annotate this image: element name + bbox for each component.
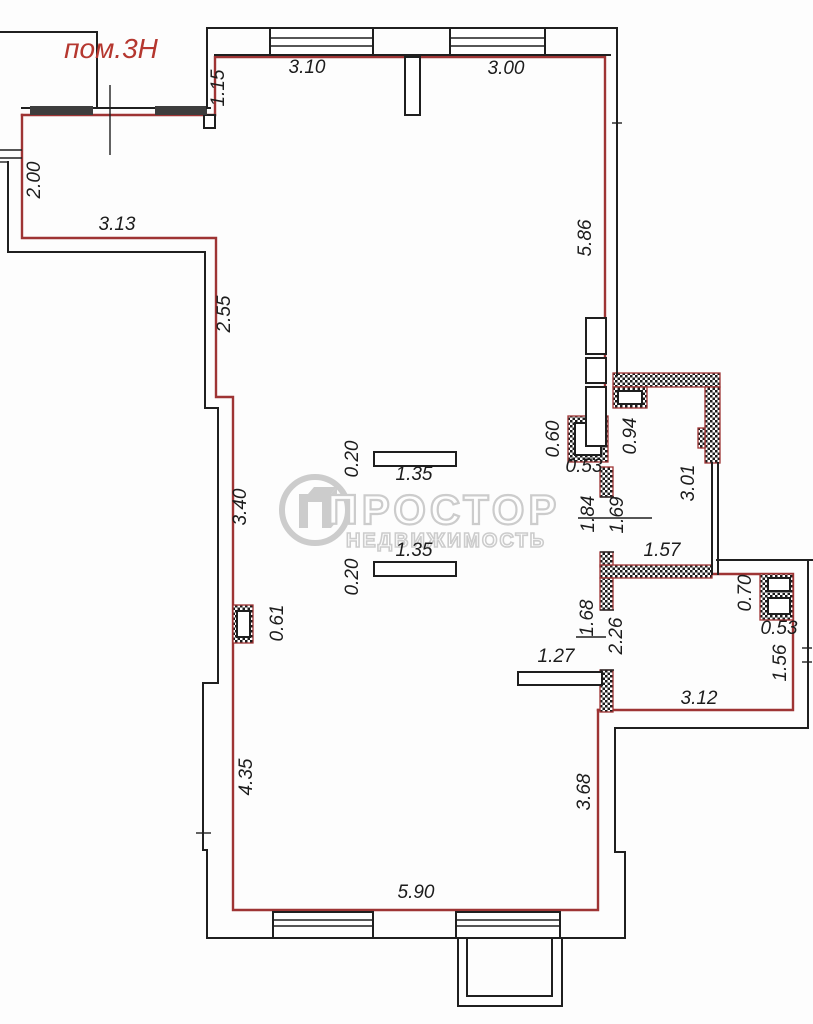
fixtures bbox=[204, 57, 790, 685]
room-label: пом.3Н bbox=[64, 33, 159, 64]
dimension-label: 2.26 bbox=[606, 617, 627, 655]
dimension-label: 2.00 bbox=[24, 161, 45, 199]
watermark-brand: ПРОСТОР bbox=[328, 486, 561, 533]
dimension-label: 0.70 bbox=[735, 574, 756, 611]
window bbox=[456, 912, 560, 938]
dimension-label: 3.68 bbox=[574, 773, 595, 810]
hatched-wall bbox=[600, 565, 712, 578]
wall-stub bbox=[518, 672, 602, 685]
dimension-label: 3.40 bbox=[230, 488, 251, 525]
dimension-label: 1.69 bbox=[607, 496, 628, 533]
window-sill bbox=[155, 106, 207, 115]
dimension-label: 1.84 bbox=[578, 496, 599, 533]
dimension-label: 1.68 bbox=[577, 599, 598, 636]
dimension-label: 1.57 bbox=[644, 540, 682, 561]
window-sill bbox=[30, 106, 93, 115]
dimension-label: 1.56 bbox=[770, 644, 791, 681]
dimension-label: 5.86 bbox=[575, 219, 596, 256]
hatched-wall bbox=[698, 428, 705, 448]
window bbox=[270, 28, 373, 55]
dimension-labels: 1.153.103.002.003.135.862.553.400.201.35… bbox=[24, 57, 798, 903]
dimension-label: 0.53 bbox=[566, 456, 603, 477]
hatched-wall bbox=[613, 373, 720, 387]
wall-notch bbox=[204, 115, 215, 128]
dimension-label: 3.10 bbox=[289, 57, 326, 78]
niche-opening bbox=[618, 391, 642, 404]
dimension-label: 4.35 bbox=[236, 758, 257, 795]
dimension-label: 3.13 bbox=[99, 214, 136, 235]
dimension-label: 3.00 bbox=[488, 58, 525, 79]
balcony bbox=[458, 938, 562, 1006]
column-opening bbox=[237, 611, 250, 637]
dimension-label: 1.15 bbox=[208, 69, 229, 106]
wall-pier bbox=[586, 387, 606, 446]
floor-plan-drawing: ПРОСТОР НЕДВИЖИМОСТЬ пом.3Н 1.153.103.00… bbox=[0, 0, 813, 1024]
dimension-label: 3.01 bbox=[678, 465, 699, 502]
dimension-label: 0.20 bbox=[342, 558, 363, 595]
dimension-label: 5.90 bbox=[398, 882, 435, 903]
floor-plan-page: ПРОСТОР НЕДВИЖИМОСТЬ пом.3Н 1.153.103.00… bbox=[0, 0, 813, 1024]
dimension-label: 1.35 bbox=[396, 540, 433, 561]
shaft-opening bbox=[768, 598, 790, 614]
beam-marker bbox=[374, 562, 456, 576]
hatched-wall bbox=[600, 578, 613, 610]
wall-pier bbox=[586, 358, 606, 383]
window bbox=[273, 912, 373, 938]
dimension-label: 0.61 bbox=[267, 605, 288, 642]
pilaster bbox=[405, 57, 420, 115]
dimension-label: 0.60 bbox=[543, 420, 564, 457]
dimension-label: 0.53 bbox=[761, 618, 798, 639]
dimension-label: 1.27 bbox=[538, 646, 576, 667]
dimension-label: 3.12 bbox=[681, 688, 718, 709]
dimension-label: 0.20 bbox=[342, 440, 363, 477]
dimension-label: 1.35 bbox=[396, 464, 433, 485]
hatched-wall bbox=[705, 387, 720, 463]
dimension-label: 0.94 bbox=[620, 418, 641, 455]
window bbox=[450, 28, 545, 55]
shaft-opening bbox=[768, 578, 790, 591]
watermark-subtitle: НЕДВИЖИМОСТЬ bbox=[346, 530, 546, 552]
dimension-label: 2.55 bbox=[214, 295, 235, 333]
wall-pier bbox=[586, 318, 606, 354]
